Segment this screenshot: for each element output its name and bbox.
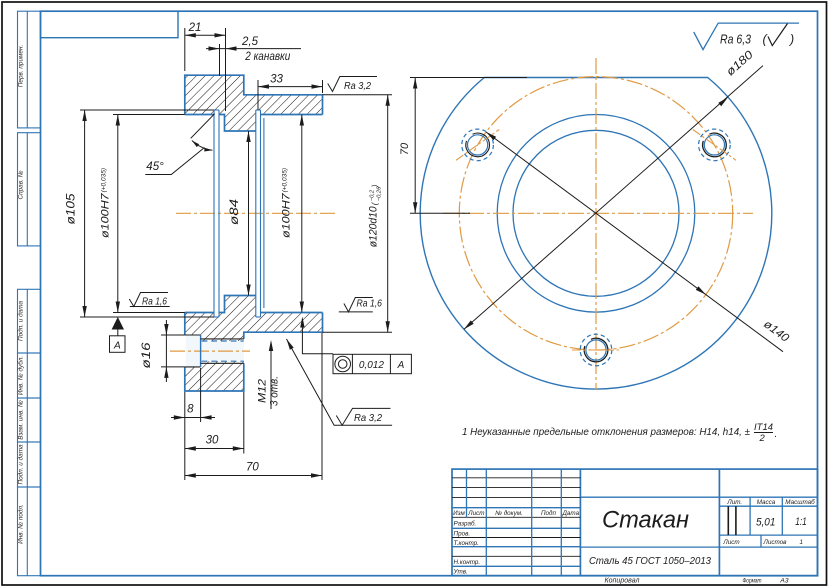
svg-text:Стакан: Стакан: [602, 507, 689, 534]
svg-text:ø120d10: ø120d10: [368, 205, 380, 247]
svg-text:Справ. №: Справ. №: [18, 170, 25, 199]
svg-text:1 Неуказанные предельные откло: 1 Неуказанные предельные отклонения разм…: [462, 427, 750, 438]
svg-text:Подп: Подп: [541, 509, 557, 517]
svg-text:№ докум.: № докум.: [495, 509, 523, 517]
svg-text:Масштаб: Масштаб: [785, 498, 815, 506]
svg-text:8: 8: [187, 404, 194, 416]
svg-text:(+0,035): (+0,035): [100, 168, 107, 192]
svg-text:Изм: Изм: [453, 510, 465, 517]
svg-text:Ra 6,3: Ra 6,3: [720, 33, 751, 47]
svg-text:ø16: ø16: [141, 342, 153, 369]
svg-text:3 отв.: 3 отв.: [268, 376, 280, 406]
svg-text:Ra 3,2: Ra 3,2: [344, 80, 371, 92]
svg-text:Подп. и дата: Подп. и дата: [17, 444, 25, 484]
svg-text:Лист: Лист: [722, 539, 739, 546]
svg-text:Дата: Дата: [561, 510, 579, 517]
svg-text:Н.контр.: Н.контр.: [454, 559, 481, 566]
svg-text:Утв.: Утв.: [453, 569, 468, 576]
svg-text:Перв. примен.: Перв. примен.: [18, 45, 25, 87]
svg-text:Инв. № дубл.: Инв. № дубл.: [17, 356, 25, 395]
svg-text:ø100H7: ø100H7: [100, 192, 112, 238]
svg-text:Масса: Масса: [757, 499, 776, 506]
svg-text:Ra 1,6: Ra 1,6: [357, 299, 383, 310]
svg-text:2 канавки: 2 канавки: [244, 51, 290, 63]
svg-text:Разраб.: Разраб.: [454, 520, 477, 528]
svg-text:Формат: Формат: [743, 578, 762, 585]
svg-text:Ra 3,2: Ra 3,2: [354, 412, 382, 424]
svg-text:А3: А3: [779, 578, 789, 585]
svg-text:30: 30: [206, 435, 219, 447]
svg-text:5,01: 5,01: [756, 517, 776, 529]
svg-text:−0,2: −0,2: [370, 189, 376, 201]
svg-text:33: 33: [270, 74, 283, 86]
svg-text:70: 70: [399, 142, 411, 155]
svg-text:Пров.: Пров.: [454, 531, 471, 538]
svg-text:45°: 45°: [146, 161, 164, 173]
svg-text:1:1: 1:1: [795, 516, 807, 528]
svg-text:М12: М12: [256, 379, 268, 403]
svg-text:IT14: IT14: [754, 422, 773, 433]
svg-text:Взам. инв. №: Взам. инв. №: [18, 400, 25, 440]
svg-text:): ): [371, 184, 380, 188]
svg-text:Т.контр.: Т.контр.: [454, 540, 479, 547]
svg-text:70: 70: [246, 462, 259, 474]
svg-text:Подп. и дата: Подп. и дата: [17, 301, 25, 341]
svg-text:.: .: [775, 429, 778, 440]
svg-text:A: A: [113, 341, 121, 352]
svg-text:(+0,035): (+0,035): [281, 168, 288, 192]
svg-text:2: 2: [759, 433, 766, 444]
svg-text:21: 21: [188, 22, 202, 34]
svg-text:ø105: ø105: [66, 193, 78, 225]
svg-text:Ra 1,6: Ra 1,6: [142, 297, 167, 308]
svg-text:Листов: Листов: [763, 539, 788, 546]
svg-text:Сталь 45 ГОСТ 1050–2013: Сталь 45 ГОСТ 1050–2013: [589, 556, 711, 567]
svg-text:ø100H7: ø100H7: [281, 192, 293, 238]
svg-text:ø84: ø84: [229, 199, 241, 225]
svg-text:Копировал: Копировал: [605, 578, 640, 585]
svg-text:1: 1: [800, 539, 804, 546]
svg-text:2,5: 2,5: [241, 36, 259, 48]
svg-text:A: A: [397, 360, 405, 371]
svg-text:Лит.: Лит.: [726, 499, 742, 506]
svg-text:0,012: 0,012: [359, 360, 384, 371]
svg-text:Лист: Лист: [467, 510, 484, 517]
svg-text:Инв. № подл.: Инв. № подл.: [17, 504, 25, 544]
